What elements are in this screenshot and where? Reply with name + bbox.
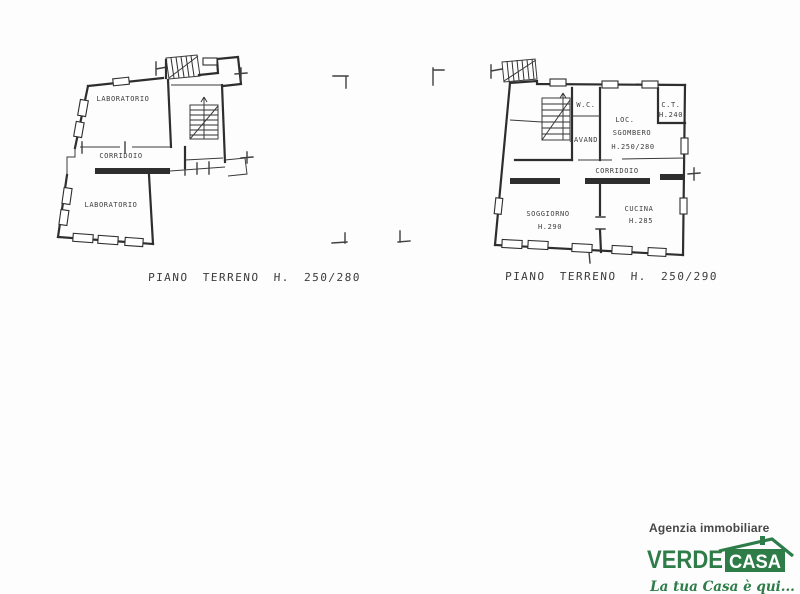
tick-cross-right [241, 152, 253, 163]
room-label-sgombero: SGOMBERO [613, 129, 652, 137]
room-label-sgombero-height: H.250/280 [611, 143, 654, 151]
outer-wall-bottomroom-right [149, 175, 153, 244]
crop-mark-bottom-left [332, 233, 347, 243]
room-label-laboratorio-top: LABORATORIO [97, 95, 150, 103]
window [113, 77, 130, 86]
tick-cross-topright [235, 68, 247, 80]
agency-tagline: La tua Casa è qui... [645, 579, 800, 594]
floorplan-left-drawing: LABORATORIO CORRIDOIO LABORATORIO [35, 50, 325, 270]
door-gap-ticks [596, 217, 605, 229]
agency-brand-lockup: VERDE CASA [645, 536, 800, 576]
wall-stairroom-bottom [185, 158, 223, 160]
stair-entry-arrow [491, 65, 502, 78]
outer-wall-left [495, 83, 510, 245]
window [78, 99, 89, 116]
window [602, 81, 618, 88]
wall-corridor-bottom-mid [585, 178, 650, 184]
crop-mark-bottom-right [398, 231, 410, 242]
window [502, 239, 522, 248]
agency-logo: Agenzia immobiliare VERDE CASA La tua Ca… [645, 520, 800, 594]
window [73, 233, 94, 242]
wall-stairroom-inner [510, 120, 542, 122]
room-label-corridoio: CORRIDOIO [99, 152, 142, 160]
wall-soggiorno-cucina [600, 184, 601, 252]
brand-verde-text: VERDE [647, 546, 723, 574]
interior-stair-steps [542, 104, 570, 134]
outer-wall-top [510, 81, 685, 85]
outer-wall-left-lower [58, 175, 67, 237]
wall-corridor-top-right [578, 158, 685, 160]
window [59, 210, 69, 226]
window [494, 198, 503, 215]
room-label-cucina: CUCINA [625, 205, 654, 213]
crop-mark-top-right [433, 68, 444, 85]
wall-corridor-bottom-left [510, 178, 560, 184]
window [62, 188, 72, 205]
outer-wall-right [683, 85, 685, 255]
floorplan-left-caption: PIANO TERRENO H. 250/280 [148, 271, 362, 284]
bottom-center-tick [589, 252, 590, 263]
logo-chimney [760, 536, 765, 545]
window [680, 198, 687, 214]
window [642, 81, 658, 88]
window [648, 248, 666, 257]
exterior-stair-steps [171, 56, 194, 78]
window [125, 237, 144, 246]
room-label-lavanderia: LAVAND. [569, 136, 603, 144]
crop-mark-top-left [333, 76, 348, 88]
entry-porch [225, 158, 247, 176]
floorplan-right-drawing: W.C. LAVAND. LOC. SGOMBERO H.250/280 C.T… [480, 50, 720, 272]
window [203, 58, 217, 65]
window [98, 235, 119, 244]
room-label-soggiorno: SOGGIORNO [526, 210, 569, 218]
room-label-ct: C.T. [661, 101, 680, 109]
floorplan-right: W.C. LAVAND. LOC. SGOMBERO H.250/280 C.T… [480, 50, 720, 272]
room-label-corridoio: CORRIDOIO [595, 167, 638, 175]
wall-corridor-bottom-right [660, 174, 683, 180]
window [74, 121, 84, 137]
room-label-laboratorio-bottom: LABORATORIO [85, 201, 138, 209]
wall-corridor-bottom [95, 168, 170, 174]
brand-casa-text: CASA [729, 552, 781, 573]
outer-wall-right [222, 85, 225, 162]
floorplan-right-caption: PIANO TERRENO H. 250/290 [505, 270, 719, 283]
tick-cross-right [688, 168, 700, 180]
window [681, 138, 688, 154]
room-label-wc: W.C. [576, 101, 595, 109]
window [528, 240, 548, 249]
exterior-stair-diagonal [504, 60, 536, 81]
floorplan-left: LABORATORIO CORRIDOIO LABORATORIO [35, 50, 325, 270]
interior-stair-arrow [190, 97, 218, 139]
outer-wall-left-upper [75, 86, 88, 148]
wall-toproom-right [168, 80, 171, 147]
agency-type-label: Agenzia immobiliare [645, 520, 800, 536]
window [572, 243, 592, 252]
room-label-loc: LOC. [615, 116, 634, 124]
window [612, 245, 632, 254]
left-wall-jog [67, 148, 75, 175]
room-label-cucina-height: H.285 [629, 217, 653, 225]
room-label-soggiorno-height: H.290 [538, 223, 562, 231]
scanned-floorplan-sheet: LABORATORIO CORRIDOIO LABORATORIO PIANO … [0, 0, 800, 594]
room-label-ct-height: H.240 [659, 111, 683, 119]
window [550, 79, 566, 86]
